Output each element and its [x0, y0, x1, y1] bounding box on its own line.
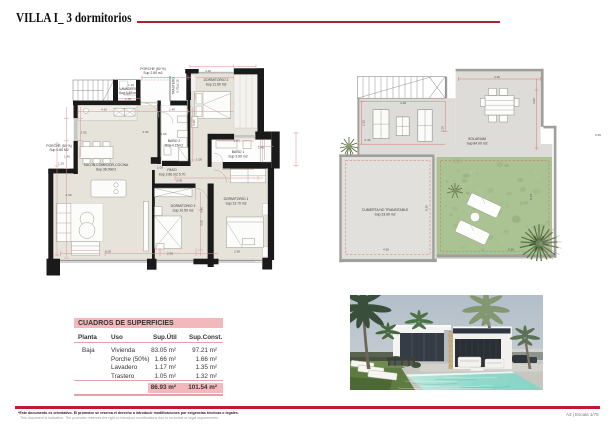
svg-text:Sup 36.09m2: Sup 36.09m2 — [96, 168, 116, 172]
svg-text:1.78: 1.78 — [125, 97, 131, 101]
svg-text:2.00: 2.00 — [233, 139, 239, 143]
svg-text:Sup 10.50 m2: Sup 10.50 m2 — [172, 209, 193, 213]
svg-text:DORMITORIO 2: DORMITORIO 2 — [204, 78, 229, 82]
svg-text:4.28: 4.28 — [400, 101, 406, 105]
svg-text:PASO: PASO — [167, 168, 177, 172]
svg-text:BAÑO 2: BAÑO 2 — [168, 138, 181, 143]
svg-text:2.65: 2.65 — [160, 132, 166, 136]
svg-text:Sup 13.70 m2: Sup 13.70 m2 — [225, 202, 246, 206]
svg-text:DORMITORIO 3: DORMITORIO 3 — [171, 204, 196, 208]
svg-text:3.30: 3.30 — [205, 69, 211, 73]
svg-text:Sup 4.15m2: Sup 4.15m2 — [165, 144, 183, 148]
svg-text:0.46: 0.46 — [364, 138, 370, 142]
svg-text:5.60: 5.60 — [508, 247, 514, 251]
svg-text:3.00: 3.00 — [200, 220, 204, 226]
svg-text:1.10: 1.10 — [128, 83, 134, 87]
svg-text:1.40: 1.40 — [64, 155, 70, 159]
svg-text:5.13: 5.13 — [529, 194, 533, 200]
svg-text:Sup 23.60 m2: Sup 23.60 m2 — [374, 213, 395, 217]
svg-text:2.76: 2.76 — [441, 126, 445, 132]
svg-text:Sup 84.00 m2: Sup 84.00 m2 — [466, 142, 487, 146]
svg-text:0.65: 0.65 — [595, 133, 601, 137]
svg-text:CUBIERTA NO TRANSITABLE: CUBIERTA NO TRANSITABLE — [362, 208, 409, 212]
svg-text:SALON-COMEDOR-COCINA: SALON-COMEDOR-COCINA — [84, 163, 129, 167]
svg-text:3.60: 3.60 — [532, 98, 536, 104]
svg-text:3.09: 3.09 — [176, 179, 182, 183]
svg-text:Sup 2.66 m2 5.70: Sup 2.66 m2 5.70 — [159, 173, 186, 177]
svg-text:4.40: 4.40 — [200, 207, 204, 213]
svg-text:1.00: 1.00 — [157, 166, 163, 170]
svg-text:4.20: 4.20 — [494, 75, 500, 79]
svg-text:Sup 0.85 M2: Sup 0.85 M2 — [49, 148, 68, 152]
svg-text:2.22: 2.22 — [362, 120, 366, 126]
svg-text:2.90: 2.90 — [142, 130, 148, 134]
svg-text:2.50: 2.50 — [80, 131, 86, 135]
svg-text:4.30: 4.30 — [65, 193, 71, 197]
svg-text:4.15: 4.15 — [101, 107, 107, 111]
svg-text:Sup 2.80 m2: Sup 2.80 m2 — [143, 71, 162, 75]
svg-text:0.70x2.15: 0.70x2.15 — [176, 79, 180, 93]
svg-text:Sup 3.90 m2: Sup 3.90 m2 — [228, 155, 247, 159]
svg-text:1.40: 1.40 — [169, 107, 175, 111]
svg-text:1.20: 1.20 — [58, 162, 64, 166]
svg-text:4.90: 4.90 — [383, 247, 389, 251]
svg-text:2.90: 2.90 — [167, 252, 173, 256]
svg-text:1.40: 1.40 — [258, 146, 264, 150]
svg-text:2.90: 2.90 — [234, 250, 240, 254]
svg-text:3.00: 3.00 — [105, 250, 111, 254]
svg-text:Sup 11.60 m2: Sup 11.60 m2 — [206, 83, 227, 87]
svg-text:SOLARIUM: SOLARIUM — [468, 137, 486, 141]
svg-text:DORMITORIO 1: DORMITORIO 1 — [224, 197, 249, 201]
svg-text:4.40: 4.40 — [192, 120, 196, 126]
svg-text:1.00: 1.00 — [196, 157, 202, 161]
svg-text:1.19: 1.19 — [124, 92, 130, 96]
svg-text:5.20: 5.20 — [425, 205, 429, 211]
svg-text:BAÑO 1: BAÑO 1 — [232, 149, 245, 154]
